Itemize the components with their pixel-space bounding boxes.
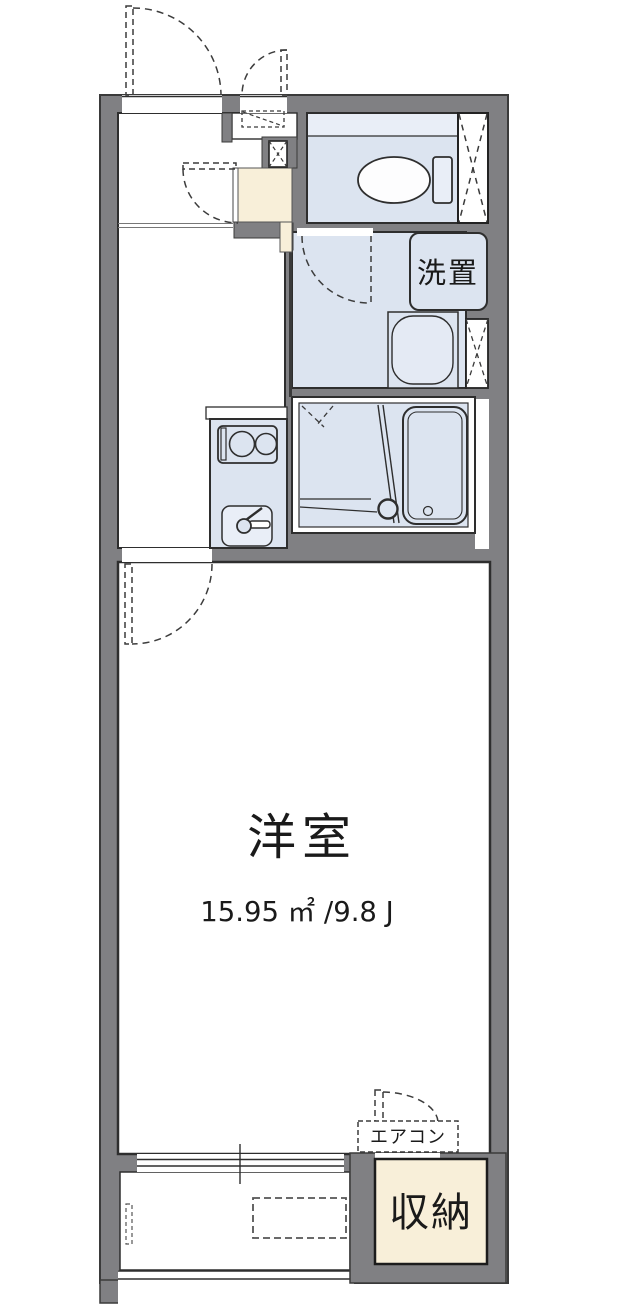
genkan-bottom-wall — [234, 222, 280, 238]
floorplan-page: 洋室 15.95 ㎡ /9.8 J 洗置 エアコン 収納 — [0, 0, 620, 1314]
genkan-floor — [238, 168, 292, 222]
hall-washroom-thin-wall — [289, 250, 292, 397]
toilet-shelf-strip — [307, 113, 458, 136]
kitchen-main-room-opening — [122, 548, 212, 562]
toilet-bowl — [358, 157, 430, 203]
floorplan-svg: 洋室 15.95 ㎡ /9.8 J 洗置 エアコン 収納 — [0, 0, 620, 1314]
entrance-door-opening — [122, 95, 222, 113]
laundry-space-label: 洗置 — [417, 256, 479, 290]
faucet-base — [237, 519, 251, 533]
bathtub-icon — [403, 407, 467, 524]
aircon-label: エアコン — [370, 1127, 446, 1148]
entrance-door-arc — [133, 8, 221, 95]
washroom-door-threshold — [297, 228, 373, 236]
left-wall-foot — [100, 1280, 120, 1303]
toilet-tank — [433, 157, 452, 203]
kitchen-counter — [206, 407, 287, 548]
second-door-opening — [240, 95, 287, 113]
washbasin-icon — [388, 312, 458, 388]
second-door-leaf — [281, 50, 287, 95]
entrance-door-leaf — [126, 6, 133, 95]
genkan-floor-tab — [280, 222, 292, 252]
niche-left-stub — [222, 113, 232, 142]
kitchen-counter-edge — [206, 407, 287, 419]
toilet-icon — [358, 157, 452, 203]
storage-label: 収納 — [389, 1190, 473, 1236]
washbasin-bowl — [392, 316, 453, 384]
bath-side-gap — [475, 399, 489, 549]
faucet-spout — [249, 521, 270, 528]
main-room-label: 洋室 — [247, 809, 357, 866]
balcony — [120, 1172, 350, 1270]
bath-drain-circle — [379, 500, 398, 519]
sink-icon — [222, 506, 272, 546]
bathtub-outer — [403, 407, 467, 524]
main-room-area: 15.95 ㎡ /9.8 J — [200, 896, 394, 928]
balcony-clear — [118, 1270, 354, 1314]
genkan-track — [233, 168, 238, 222]
